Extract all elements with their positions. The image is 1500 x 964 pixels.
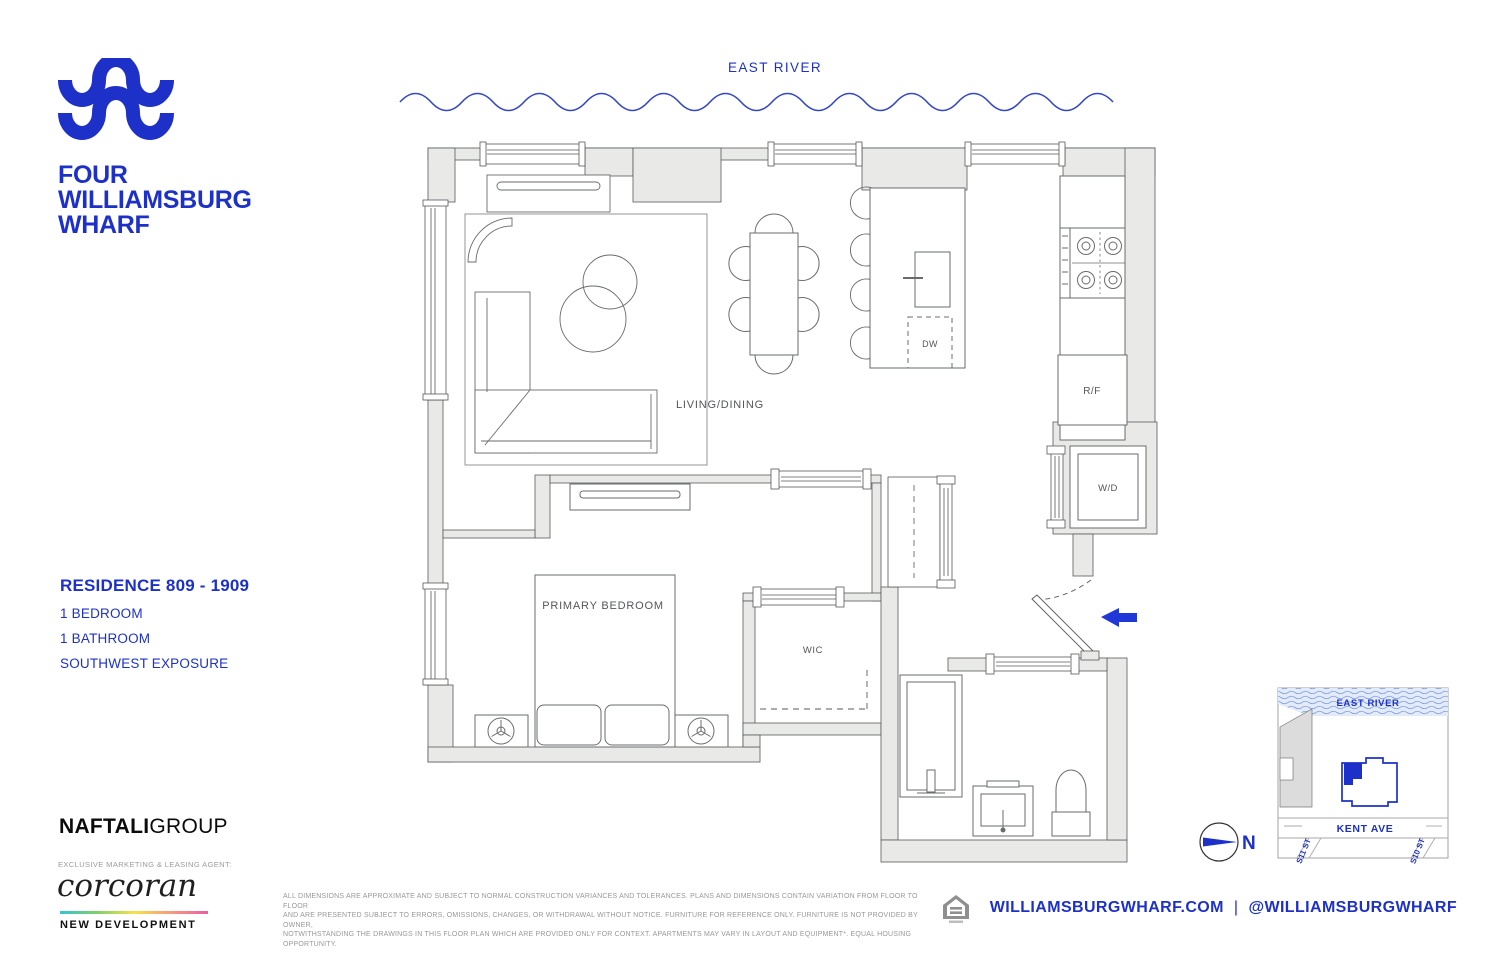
dining-chair <box>729 247 750 281</box>
window <box>423 583 448 685</box>
window <box>480 142 585 166</box>
room-label-living: LIVING/DINING <box>676 399 764 411</box>
refrigerator: R/F <box>1058 355 1127 425</box>
armchair <box>468 218 512 262</box>
river-wave-line <box>400 94 1113 111</box>
dining-chair <box>798 247 819 281</box>
bathroom-door <box>986 654 1079 674</box>
dining-area <box>729 214 819 374</box>
kitchen-island-group <box>850 187 965 368</box>
pillow <box>605 705 669 745</box>
wd-door <box>1047 446 1065 528</box>
bathtub <box>900 675 962 797</box>
floorplan-sheet: { "brand": { "logo_lines": ["FOUR", "WIL… <box>0 0 1500 964</box>
room-label-bedroom: PRIMARY BEDROOM <box>542 600 664 612</box>
river-banner: EAST RIVER <box>395 48 1155 114</box>
footer-website[interactable]: WILLIAMSBURGWHARF.COM <box>990 899 1224 917</box>
stove <box>1060 228 1125 298</box>
agent-logo: corcoran <box>57 868 197 904</box>
brand-line-1: FOUR <box>58 163 252 188</box>
bedroom-door <box>771 469 871 489</box>
vanity-sink <box>973 781 1033 836</box>
living-room <box>465 175 707 465</box>
brand-line-3: WHARF <box>58 213 252 238</box>
label-wd: W/D <box>1098 483 1118 494</box>
window <box>965 142 1065 166</box>
map-street-kent-label: KENT AVE <box>1337 823 1394 835</box>
kitchen-counter-group: R/F <box>1058 176 1127 440</box>
washer-dryer-group: W/D <box>1047 446 1146 528</box>
disclaimer-line: AND ARE PRESENTED SUBJECT TO ERRORS, OMI… <box>283 911 935 930</box>
windows-north <box>480 142 1065 166</box>
equal-housing-icon <box>941 893 971 925</box>
entry <box>1032 580 1137 660</box>
brand-name: FOUR WILLIAMSBURG WHARF <box>58 163 252 238</box>
residence-feature: SOUTHWEST EXPOSURE <box>60 656 249 671</box>
footer-social[interactable]: @WILLIAMSBURGWHARF <box>1248 899 1457 917</box>
coffee-table <box>583 255 637 309</box>
dining-chair <box>755 214 793 233</box>
developer-name-bold: NAFTALI <box>59 815 149 838</box>
residence-feature: 1 BEDROOM <box>60 606 249 621</box>
window <box>768 142 862 166</box>
disclaimer: ALL DIMENSIONS ARE APPROXIMATE AND SUBJE… <box>283 892 935 950</box>
brand-line-2: WILLIAMSBURG <box>58 188 252 213</box>
dining-chair <box>729 298 750 332</box>
developer-name-light: GROUP <box>149 815 228 838</box>
dining-table <box>750 233 798 355</box>
dining-chair <box>798 298 819 332</box>
agent-rainbow-bar <box>60 911 208 914</box>
map-river-label: EAST RIVER <box>1336 698 1399 709</box>
bedroom-furniture <box>475 484 728 747</box>
locator-map: EAST RIVER KENT AVE S11 ST S10 ST N <box>1190 680 1460 870</box>
room-label-wic: WIC <box>803 645 823 656</box>
pillow <box>537 705 601 745</box>
residence-title: RESIDENCE 809 - 1909 <box>60 576 249 596</box>
island-stool <box>850 279 872 311</box>
disclaimer-line: NOTWITHSTANDING THE DRAWINGS IN THIS FLO… <box>283 930 935 949</box>
wic-door <box>753 587 844 607</box>
bathroom <box>900 654 1090 836</box>
agent-sub-label: NEW DEVELOPMENT <box>60 919 196 931</box>
coffee-tables <box>560 255 637 352</box>
entry-arrow-icon <box>1101 608 1137 627</box>
window <box>423 200 448 400</box>
island-stool <box>850 234 872 266</box>
logo-wave-icon <box>55 58 215 153</box>
door-swing-arc <box>1035 580 1091 600</box>
developer-logo: NAFTALIGROUP <box>59 815 228 839</box>
dining-chair <box>755 355 793 374</box>
footer-separator: | <box>1234 899 1239 917</box>
coffee-table <box>560 286 626 352</box>
label-rf: R/F <box>1083 386 1101 397</box>
map-building-outline <box>1342 758 1397 806</box>
nightstand <box>475 715 528 747</box>
media-console <box>487 175 610 212</box>
residence-feature: 1 BATHROOM <box>60 631 249 646</box>
entry-door-leaf <box>1032 595 1094 656</box>
residence-info: RESIDENCE 809 - 1909 1 BEDROOM 1 BATHROO… <box>60 576 249 671</box>
compass: N <box>1200 823 1256 861</box>
coat-closet <box>888 476 955 588</box>
floor-plan: R/F W/D <box>415 140 1165 870</box>
label-dw: DW <box>922 339 938 349</box>
island-stool <box>850 327 872 359</box>
river-label: EAST RIVER <box>728 60 822 75</box>
compass-n-label: N <box>1242 833 1256 854</box>
nightstand <box>675 715 728 747</box>
tub-faucet-icon <box>927 770 935 792</box>
footer-links: WILLIAMSBURGWHARF.COM | @WILLIAMSBURGWHA… <box>990 899 1457 917</box>
door-jamb <box>1081 651 1099 660</box>
wic-rods <box>760 670 867 709</box>
island-stool <box>850 187 872 219</box>
disclaimer-line: ALL DIMENSIONS ARE APPROXIMATE AND SUBJE… <box>283 892 935 911</box>
toilet <box>1052 770 1090 836</box>
sofa <box>475 292 657 453</box>
